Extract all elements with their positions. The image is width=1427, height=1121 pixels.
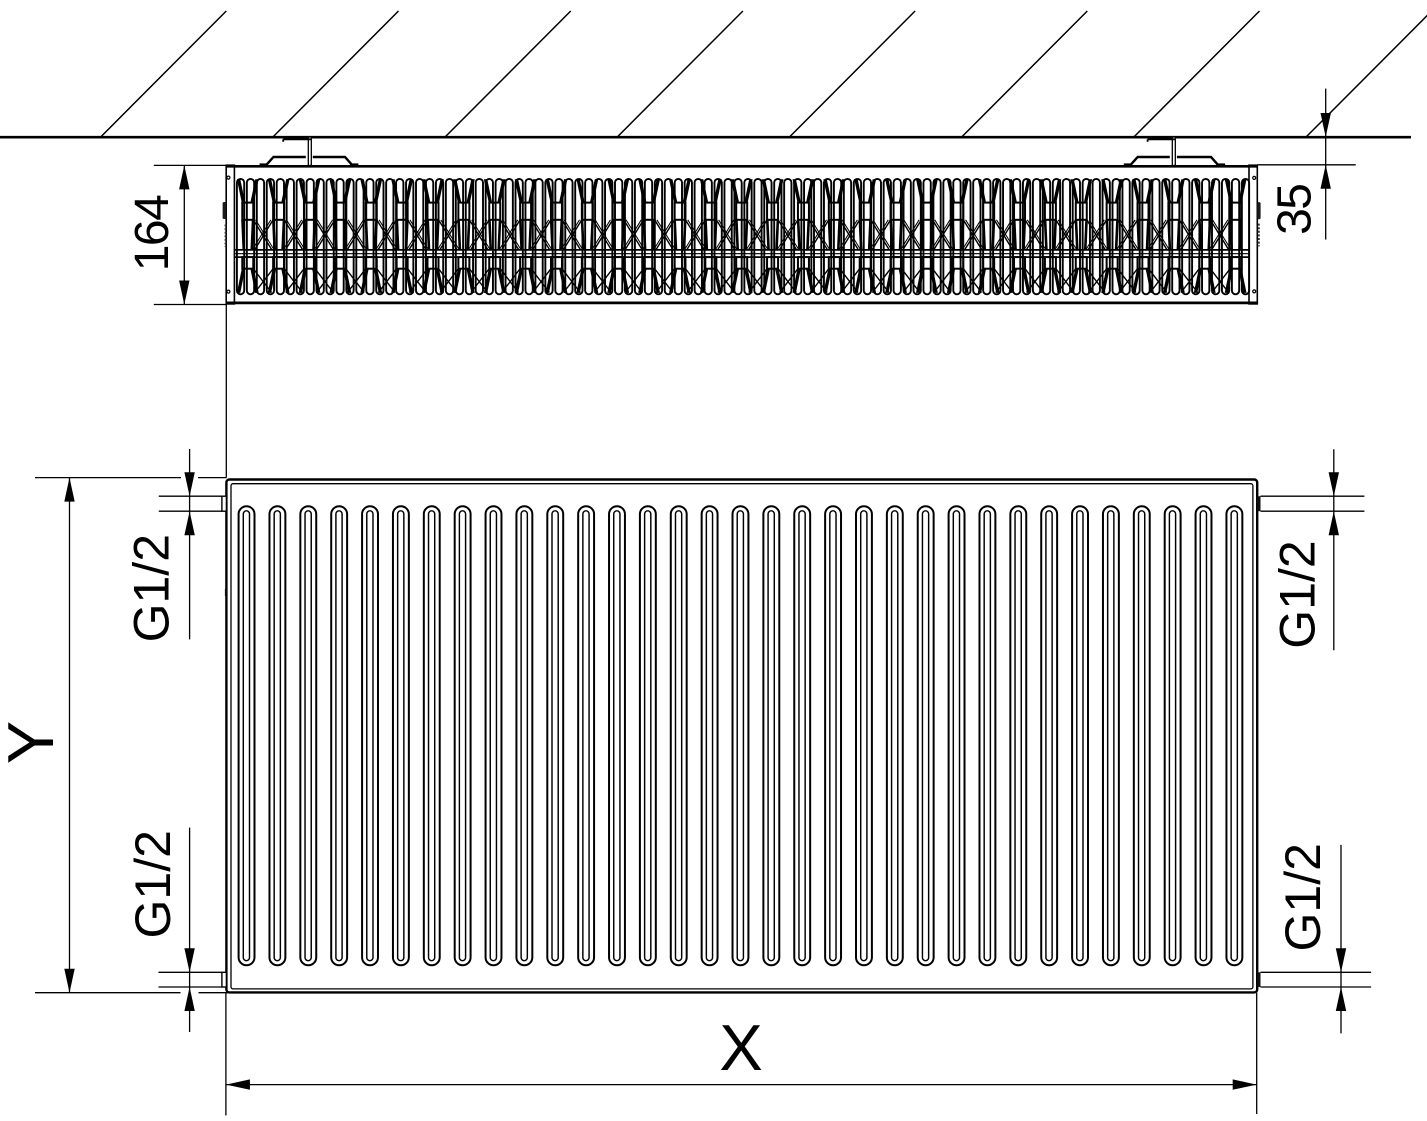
svg-text:164: 164 (126, 195, 179, 271)
svg-text:G1/2: G1/2 (1269, 540, 1325, 648)
svg-text:X: X (719, 1011, 762, 1084)
svg-text:35: 35 (1269, 185, 1322, 235)
svg-text:G1/2: G1/2 (125, 830, 181, 938)
svg-text:G1/2: G1/2 (124, 534, 180, 642)
svg-text:Y: Y (0, 721, 67, 764)
svg-text:G1/2: G1/2 (1275, 843, 1331, 951)
